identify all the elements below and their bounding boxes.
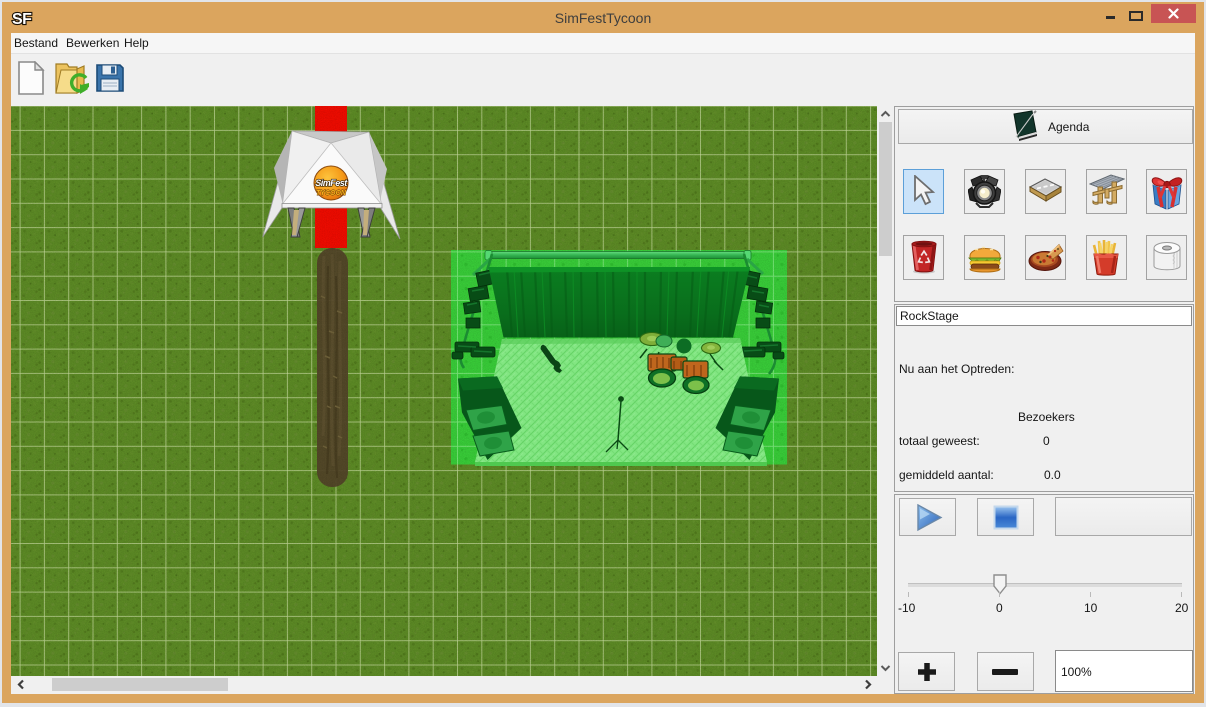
svg-text:TYCOON: TYCOON [316,190,347,197]
svg-text:SimFest: SimFest [315,178,348,188]
